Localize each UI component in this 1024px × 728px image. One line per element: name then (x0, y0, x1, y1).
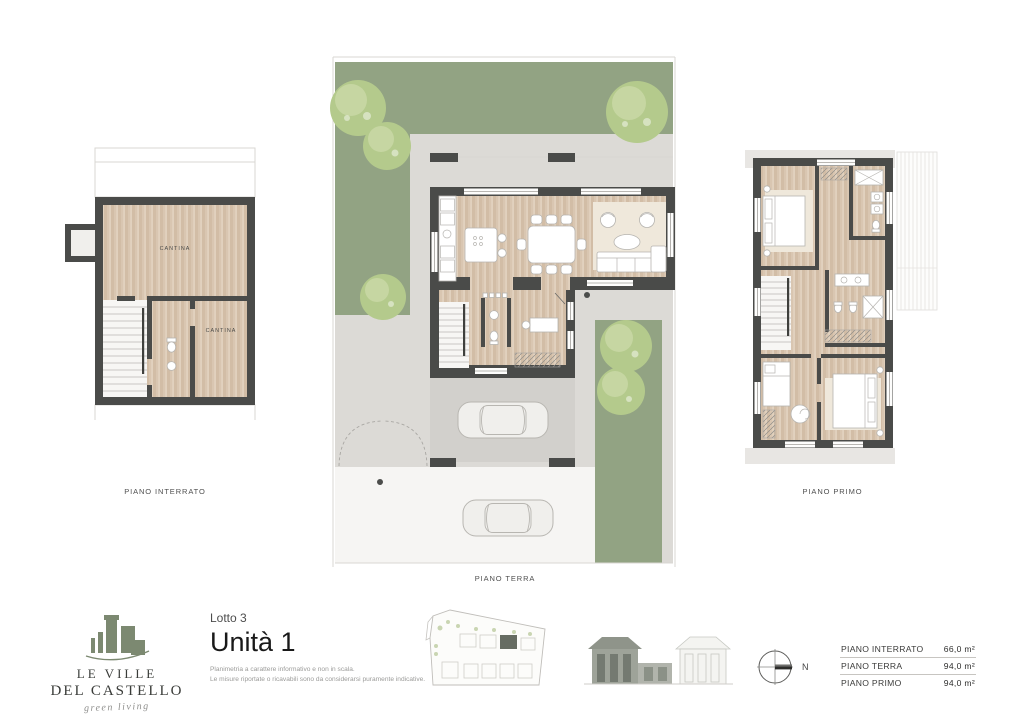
unit-info: Lotto 3 Unità 1 Planimetria a carattere … (210, 611, 440, 685)
ground-sink-icon (490, 311, 499, 320)
logo-text-line2: DEL CASTELLO (50, 683, 183, 700)
bedroom3-bed (833, 367, 883, 436)
logo-text-line1: LE VILLE (77, 666, 157, 682)
plan-piano-terra-drawing (325, 50, 685, 575)
bedroom2-bed (763, 362, 790, 406)
north-compass: N (756, 646, 809, 688)
tree (606, 81, 668, 143)
table-row: PIANO INTERRATO 66,0 m² (840, 641, 976, 658)
castle-logo-icon (79, 606, 155, 664)
floorplan-sheet: CANTINA CANTINA PIANO INTERRATO (0, 0, 1024, 728)
plan-caption-terra: PIANO TERRA (325, 574, 685, 583)
area-row-label: PIANO TERRA (841, 661, 902, 671)
site-key-plan (418, 602, 553, 697)
company-logo: LE VILLE DEL CASTELLO green living (42, 606, 192, 713)
tree (363, 122, 411, 170)
compass-icon (756, 646, 798, 688)
wardrobe-hatch-ground (515, 353, 560, 367)
wardrobe-hatch-1 (821, 168, 847, 180)
area-row-label: PIANO INTERRATO (841, 644, 924, 654)
basement-sink-icon (167, 362, 176, 371)
disclaimer-line1: Planimetria a carattere informativo e no… (210, 665, 440, 675)
lotto-label: Lotto 3 (210, 611, 440, 625)
elevation-filled (588, 637, 672, 684)
wardrobe-hatch-2 (825, 330, 871, 342)
wardrobe-hatch-3 (763, 410, 775, 438)
basement-toilet-icon (167, 338, 176, 352)
site-highlighted-lot (500, 635, 517, 649)
car-1 (458, 402, 548, 438)
area-row-value: 94,0 m² (944, 661, 975, 671)
disclaimer-line2: Le misure riportate o ricavabili sono da… (210, 675, 440, 685)
area-table: PIANO INTERRATO 66,0 m² PIANO TERRA 94,0… (840, 641, 976, 691)
plan-caption-interrato: PIANO INTERRATO (55, 487, 275, 496)
logo-tagline: green living (84, 701, 150, 714)
kitchen-counter (439, 196, 456, 281)
area-row-value: 94,0 m² (944, 678, 975, 688)
unit-title: Unità 1 (210, 627, 440, 658)
room-label-cantina-1: CANTINA (160, 246, 191, 252)
elevation-outline (676, 637, 730, 684)
car-2 (463, 500, 553, 536)
area-row-value: 66,0 m² (944, 644, 975, 654)
compass-north-label: N (802, 662, 809, 672)
elevation-drawings (578, 632, 738, 687)
room-label-cantina-2: CANTINA (206, 328, 237, 334)
bedroom1-bed (763, 186, 805, 256)
terrace-pergola (897, 152, 937, 310)
stairs-first (761, 276, 791, 350)
tree (597, 367, 645, 415)
plan-caption-primo: PIANO PRIMO (725, 487, 940, 496)
plan-piano-interrato-drawing: CANTINA CANTINA (55, 140, 275, 420)
coffee-table (614, 235, 640, 250)
area-row-label: PIANO PRIMO (841, 678, 902, 688)
tree (360, 274, 406, 320)
table-row: PIANO PRIMO 94,0 m² (840, 675, 976, 691)
tree (600, 320, 652, 372)
plan-piano-primo-drawing (725, 140, 940, 480)
ground-toilet-icon (490, 331, 498, 345)
table-row: PIANO TERRA 94,0 m² (840, 658, 976, 675)
